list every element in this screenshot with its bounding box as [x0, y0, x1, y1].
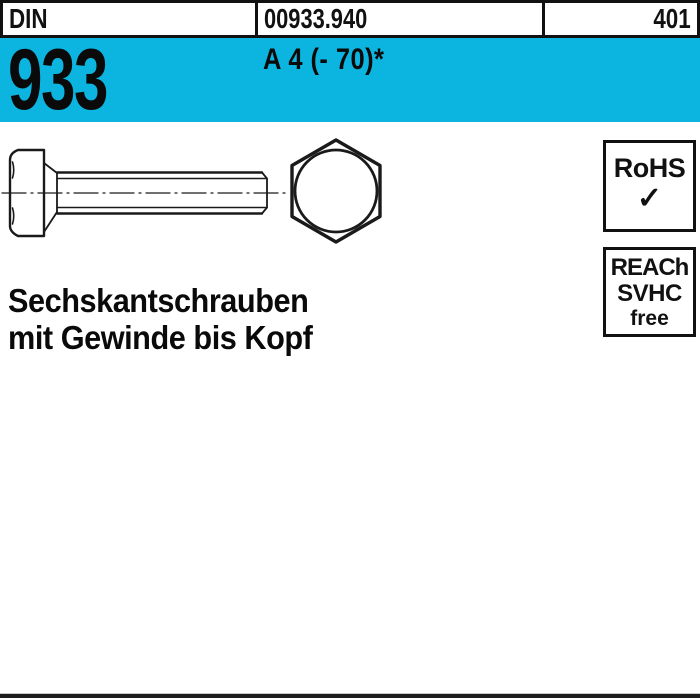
- rohs-badge: RoHS ✓: [603, 140, 696, 232]
- bolt-front-view: [292, 140, 380, 242]
- page-number-box: 401: [542, 0, 700, 38]
- reach-badge: REACh SVHC free: [603, 247, 696, 337]
- rohs-label: RoHS: [606, 154, 693, 182]
- product-title: Sechskantschrauben mit Gewinde bis Kopf: [8, 282, 335, 356]
- checkmark-icon: ✓: [606, 183, 693, 215]
- reach-line-3: free: [606, 307, 693, 330]
- bolt-side-view: [2, 150, 290, 236]
- material-spec: A 4 (- 70)*: [263, 43, 384, 77]
- technical-drawing: [0, 130, 430, 250]
- title-line-1: Sechskantschrauben: [8, 282, 312, 319]
- reach-line-2: SVHC: [606, 281, 693, 307]
- bottom-rule: [0, 694, 700, 698]
- page-number: 401: [654, 3, 691, 34]
- reach-line-1: REACh: [606, 255, 693, 281]
- article-number: 00933.940: [264, 3, 367, 34]
- catalog-page: DIN 00933.940 401 933 A 4 (- 70)*: [0, 0, 700, 700]
- title-line-2: mit Gewinde bis Kopf: [8, 319, 312, 356]
- din-label: DIN: [9, 3, 48, 34]
- standard-number: 933: [8, 40, 107, 120]
- article-number-box: 00933.940: [255, 0, 545, 38]
